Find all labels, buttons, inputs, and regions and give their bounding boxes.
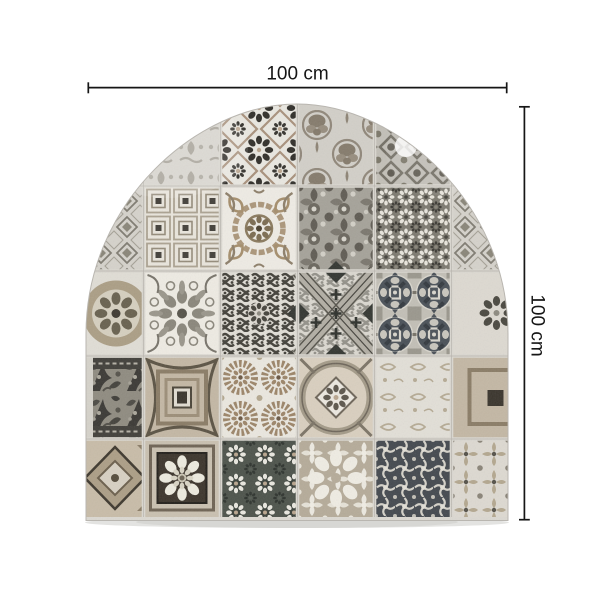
svg-text:100 cm: 100 cm [266, 64, 328, 85]
svg-text:100 cm: 100 cm [527, 294, 548, 356]
